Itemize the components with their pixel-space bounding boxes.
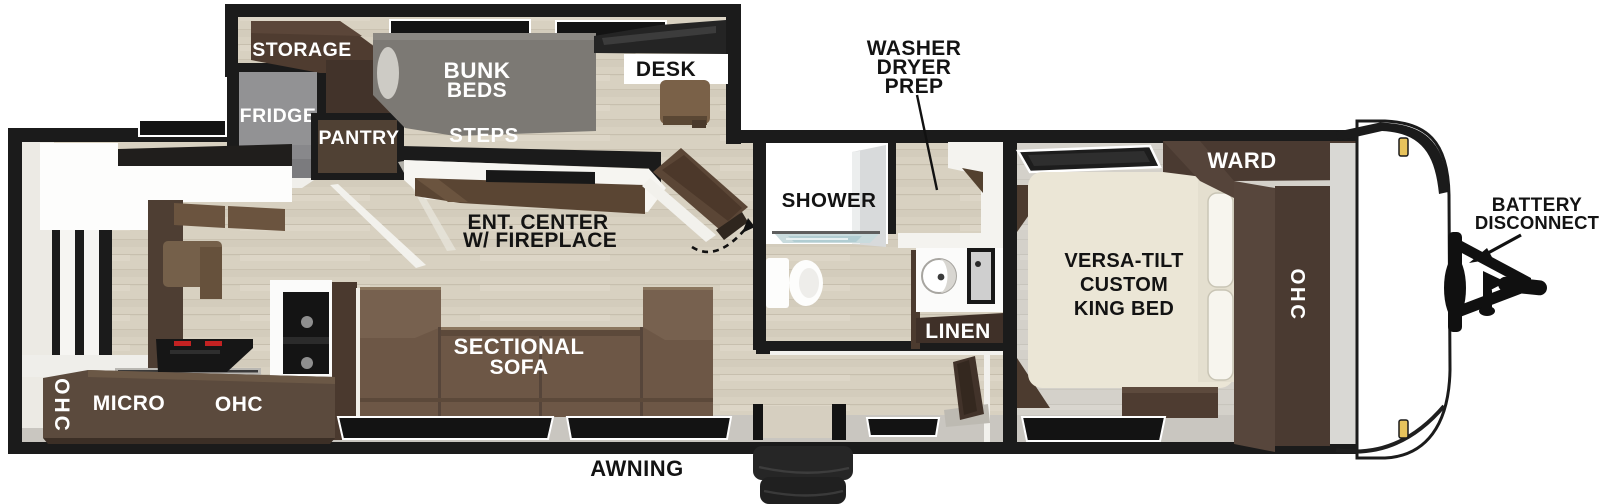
- svg-text:BEDS: BEDS: [447, 79, 507, 102]
- svg-text:LINEN: LINEN: [925, 320, 991, 343]
- svg-text:SHOWER: SHOWER: [782, 189, 877, 212]
- svg-text:SOFA: SOFA: [490, 356, 549, 379]
- svg-text:FRIDGE: FRIDGE: [240, 105, 317, 127]
- svg-text:MICRO: MICRO: [93, 392, 166, 415]
- svg-text:WARD: WARD: [1207, 148, 1276, 173]
- svg-text:KING BED: KING BED: [1074, 298, 1174, 320]
- svg-text:STORAGE: STORAGE: [252, 39, 352, 61]
- svg-text:VERSA-TILT: VERSA-TILT: [1064, 250, 1183, 272]
- svg-text:PANTRY: PANTRY: [319, 127, 400, 149]
- svg-text:W/ FIREPLACE: W/ FIREPLACE: [463, 229, 617, 252]
- svg-text:STEPS: STEPS: [449, 124, 519, 147]
- svg-text:CUSTOM: CUSTOM: [1080, 274, 1168, 296]
- svg-text:PREP: PREP: [885, 75, 944, 98]
- svg-text:DESK: DESK: [636, 58, 696, 81]
- svg-text:OHC: OHC: [215, 393, 263, 416]
- svg-text:OHC: OHC: [1286, 268, 1309, 321]
- svg-text:AWNING: AWNING: [590, 456, 683, 481]
- svg-text:DISCONNECT: DISCONNECT: [1475, 212, 1600, 233]
- svg-text:OHC: OHC: [50, 378, 73, 434]
